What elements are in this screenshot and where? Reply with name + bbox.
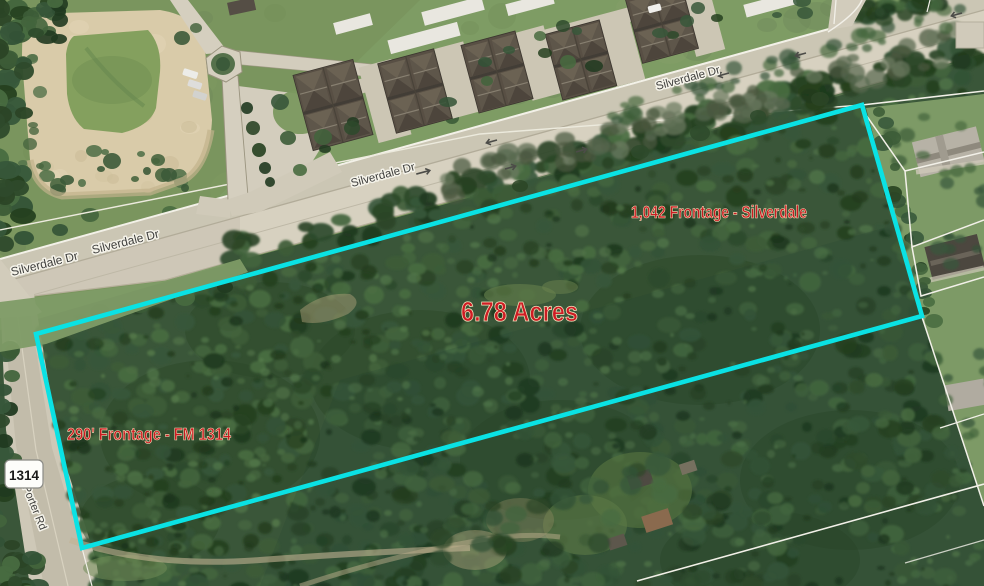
svg-text:6.78 Acres: 6.78 Acres (461, 296, 578, 327)
svg-text:290' Frontage - FM 1314: 290' Frontage - FM 1314 (67, 424, 231, 444)
svg-text:1,042 Frontage - Silverdale: 1,042 Frontage - Silverdale (631, 202, 807, 222)
svg-text:1314: 1314 (9, 468, 40, 483)
